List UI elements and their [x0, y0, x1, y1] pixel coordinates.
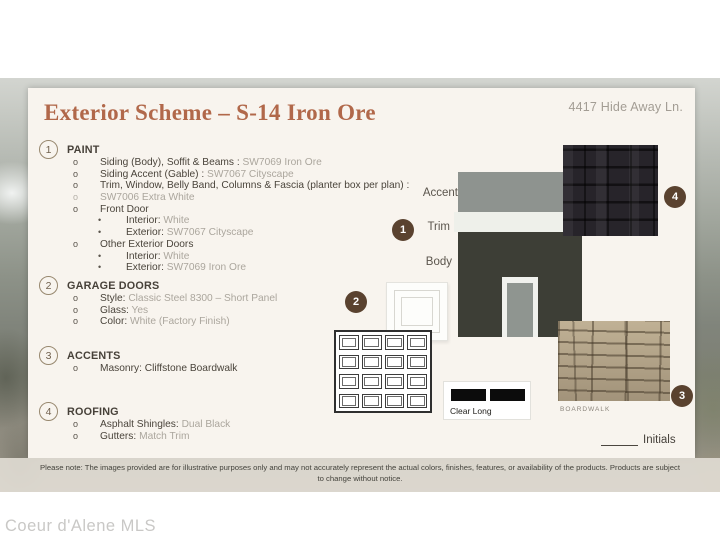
- item-label: Style:: [100, 293, 128, 304]
- list-item: oFront Door: [39, 204, 469, 216]
- garage-panel-cell: [385, 335, 405, 350]
- item-label: Interior:: [126, 215, 163, 226]
- list-item: oSiding Accent (Gable) : SW7067 Cityscap…: [39, 169, 469, 181]
- item-value: White: [163, 251, 189, 262]
- door-panel-line: [401, 297, 433, 326]
- item-value: SW7069 Iron Ore: [243, 157, 322, 168]
- body-swatch-label: Body: [405, 256, 452, 268]
- item-value: White: [163, 215, 189, 226]
- list-item: oGutters: Match Trim: [39, 431, 469, 443]
- section-heading: ROOFING: [67, 406, 119, 418]
- accent-swatch-label: Accent: [405, 187, 458, 199]
- garage-panel-cell: [385, 394, 405, 409]
- section-heading: GARAGE DOORS: [67, 280, 159, 292]
- item-label: Exterior:: [126, 227, 167, 238]
- disclaimer-text: Please note: The images provided are for…: [40, 462, 680, 484]
- initials-blank-line: [601, 433, 638, 446]
- garage-door-sample-image: [334, 330, 432, 413]
- bullet: o: [73, 293, 78, 305]
- list-item: oAsphalt Shingles: Dual Black: [39, 419, 469, 431]
- item-label: Masonry: Cliffstone Boardwalk: [100, 363, 237, 374]
- glass-window-rect: [451, 389, 486, 401]
- bullet: o: [73, 169, 78, 181]
- section-paint: 1 PAINT oSiding (Body), Soffit & Beams :…: [39, 140, 469, 274]
- badge-paint: 1: [392, 219, 414, 241]
- bullet: o: [73, 192, 78, 204]
- garage-panel-cell: [407, 374, 427, 389]
- item-label: Other Exterior Doors: [100, 239, 193, 250]
- item-label: Asphalt Shingles:: [100, 419, 182, 430]
- garage-panel-cell: [362, 374, 382, 389]
- item-label: Gutters:: [100, 431, 139, 442]
- masonry-sample-caption: BOARDWALK: [560, 406, 610, 413]
- page: { "page": { "watermark": "Coeur d'Alene …: [0, 0, 720, 556]
- section-heading: ACCENTS: [67, 350, 121, 362]
- badge-garage: 2: [345, 291, 367, 313]
- item-value: SW7067 Cityscape: [207, 169, 294, 180]
- masonry-sample-image: [558, 321, 670, 401]
- bullet: •: [98, 215, 101, 227]
- item-label: Interior:: [126, 251, 163, 262]
- shingle-sample-image: [563, 145, 658, 236]
- bullet: o: [73, 316, 78, 328]
- garage-panel-cell: [362, 394, 382, 409]
- bullet: •: [98, 227, 101, 239]
- item-label: Exterior:: [126, 262, 167, 273]
- glass-window-rect: [490, 389, 525, 401]
- list-item: oSiding (Body), Soffit & Beams : SW7069 …: [39, 157, 469, 169]
- disclaimer-band: Please note: The images provided are for…: [0, 458, 720, 492]
- garage-panel-cell: [385, 374, 405, 389]
- garage-panel-cell: [339, 335, 359, 350]
- garage-panel-cell: [339, 374, 359, 389]
- badge-masonry: 3: [671, 385, 693, 407]
- glass-sample-image: Clear Long: [443, 381, 531, 420]
- item-label: Trim, Window, Belly Band, Columns & Fasc…: [100, 180, 409, 191]
- item-label: Front Door: [100, 204, 149, 215]
- roofing-list: oAsphalt Shingles: Dual Black oGutters: …: [39, 419, 469, 442]
- item-value: Classic Steel 8300 – Short Panel: [128, 293, 277, 304]
- bullet: o: [73, 305, 78, 317]
- door-color-swatch: [507, 283, 533, 337]
- garage-panel-cell: [339, 355, 359, 370]
- section-heading: PAINT: [67, 144, 100, 156]
- mls-watermark: Coeur d'Alene MLS: [5, 517, 156, 536]
- item-value: White (Factory Finish): [130, 316, 230, 327]
- item-label: Glass:: [100, 305, 132, 316]
- garage-panel-cell: [407, 394, 427, 409]
- bullet: •: [98, 251, 101, 263]
- item-label: Siding Accent (Gable) :: [100, 169, 207, 180]
- garage-panel-cell: [385, 355, 405, 370]
- bullet: o: [73, 157, 78, 169]
- item-value: SW7069 Iron Ore: [167, 262, 246, 273]
- bullet: o: [73, 431, 78, 443]
- bullet: o: [73, 419, 78, 431]
- item-value: SW7006 Extra White: [100, 192, 195, 203]
- garage-panel-cell: [362, 355, 382, 370]
- property-address: 4417 Hide Away Ln.: [568, 100, 683, 114]
- bullet: •: [98, 262, 101, 274]
- garage-panel-cell: [407, 335, 427, 350]
- item-label: Color:: [100, 316, 130, 327]
- garage-panel-cell: [362, 335, 382, 350]
- badge-roofing: 4: [664, 186, 686, 208]
- garage-panel-cell: [407, 355, 427, 370]
- item-label: Siding (Body), Soffit & Beams :: [100, 157, 243, 168]
- item-value: Match Trim: [139, 431, 189, 442]
- bullet: o: [73, 239, 78, 251]
- bullet: o: [73, 204, 78, 216]
- page-title: Exterior Scheme – S-14 Iron Ore: [44, 100, 376, 126]
- item-value: SW7067 Cityscape: [167, 227, 254, 238]
- glass-sample-label: Clear Long: [450, 406, 492, 416]
- initials-label: Initials: [643, 434, 676, 446]
- bullet: o: [73, 363, 78, 375]
- garage-panel-cell: [339, 394, 359, 409]
- item-value: Yes: [132, 305, 149, 316]
- item-value: Dual Black: [182, 419, 231, 430]
- bullet: o: [73, 180, 78, 192]
